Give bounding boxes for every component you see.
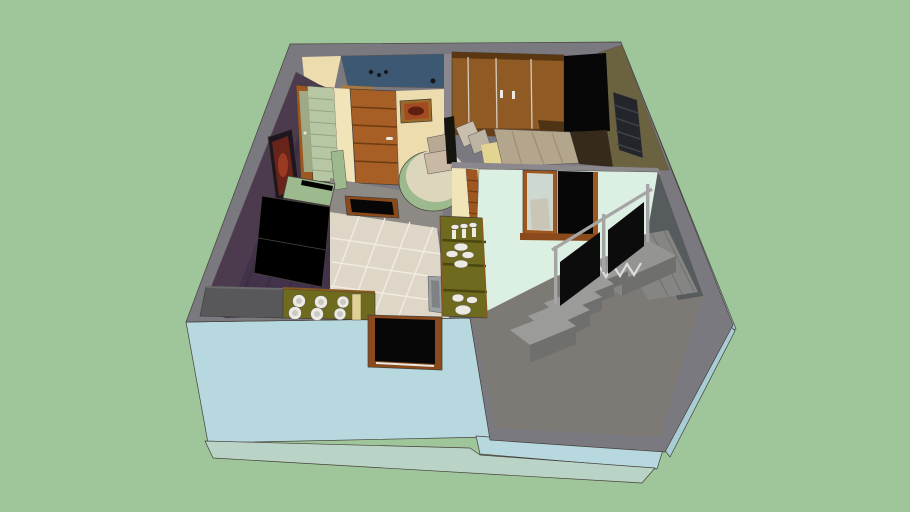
wardrobe-handle: [512, 91, 515, 99]
entrance-door-opening: [375, 318, 435, 364]
front-wall-face: [186, 318, 490, 443]
bed-blanket: [494, 129, 579, 167]
mirror-reflection: [530, 198, 550, 230]
door-handle: [386, 137, 393, 140]
paneled-door: [350, 89, 399, 185]
counter-bottle: [352, 294, 361, 320]
railing-post: [602, 214, 605, 272]
bathroom-fixture: [369, 70, 373, 74]
door-handle: [304, 132, 307, 135]
bathroom-floor: [341, 54, 444, 88]
stove-counter: [200, 287, 283, 318]
model-viewport[interactable]: 3D cutaway model of a small house interi…: [0, 0, 910, 512]
kitchen-sink-basin: [431, 280, 440, 308]
railing-post: [554, 246, 557, 304]
bathroom-fixture: [384, 70, 388, 74]
bathroom-fixture: [377, 73, 381, 77]
hall-doorway-opening: [558, 171, 593, 235]
wardrobe-handle: [500, 90, 503, 98]
bathroom-fixture: [431, 79, 436, 84]
screenshot-canvas: 3D cutaway model of a small house interi…: [0, 0, 910, 512]
doorway-sill: [520, 233, 598, 241]
closet-opening: [564, 53, 610, 132]
wall-art-paint: [278, 153, 288, 177]
framed-picture-detail: [408, 107, 424, 116]
